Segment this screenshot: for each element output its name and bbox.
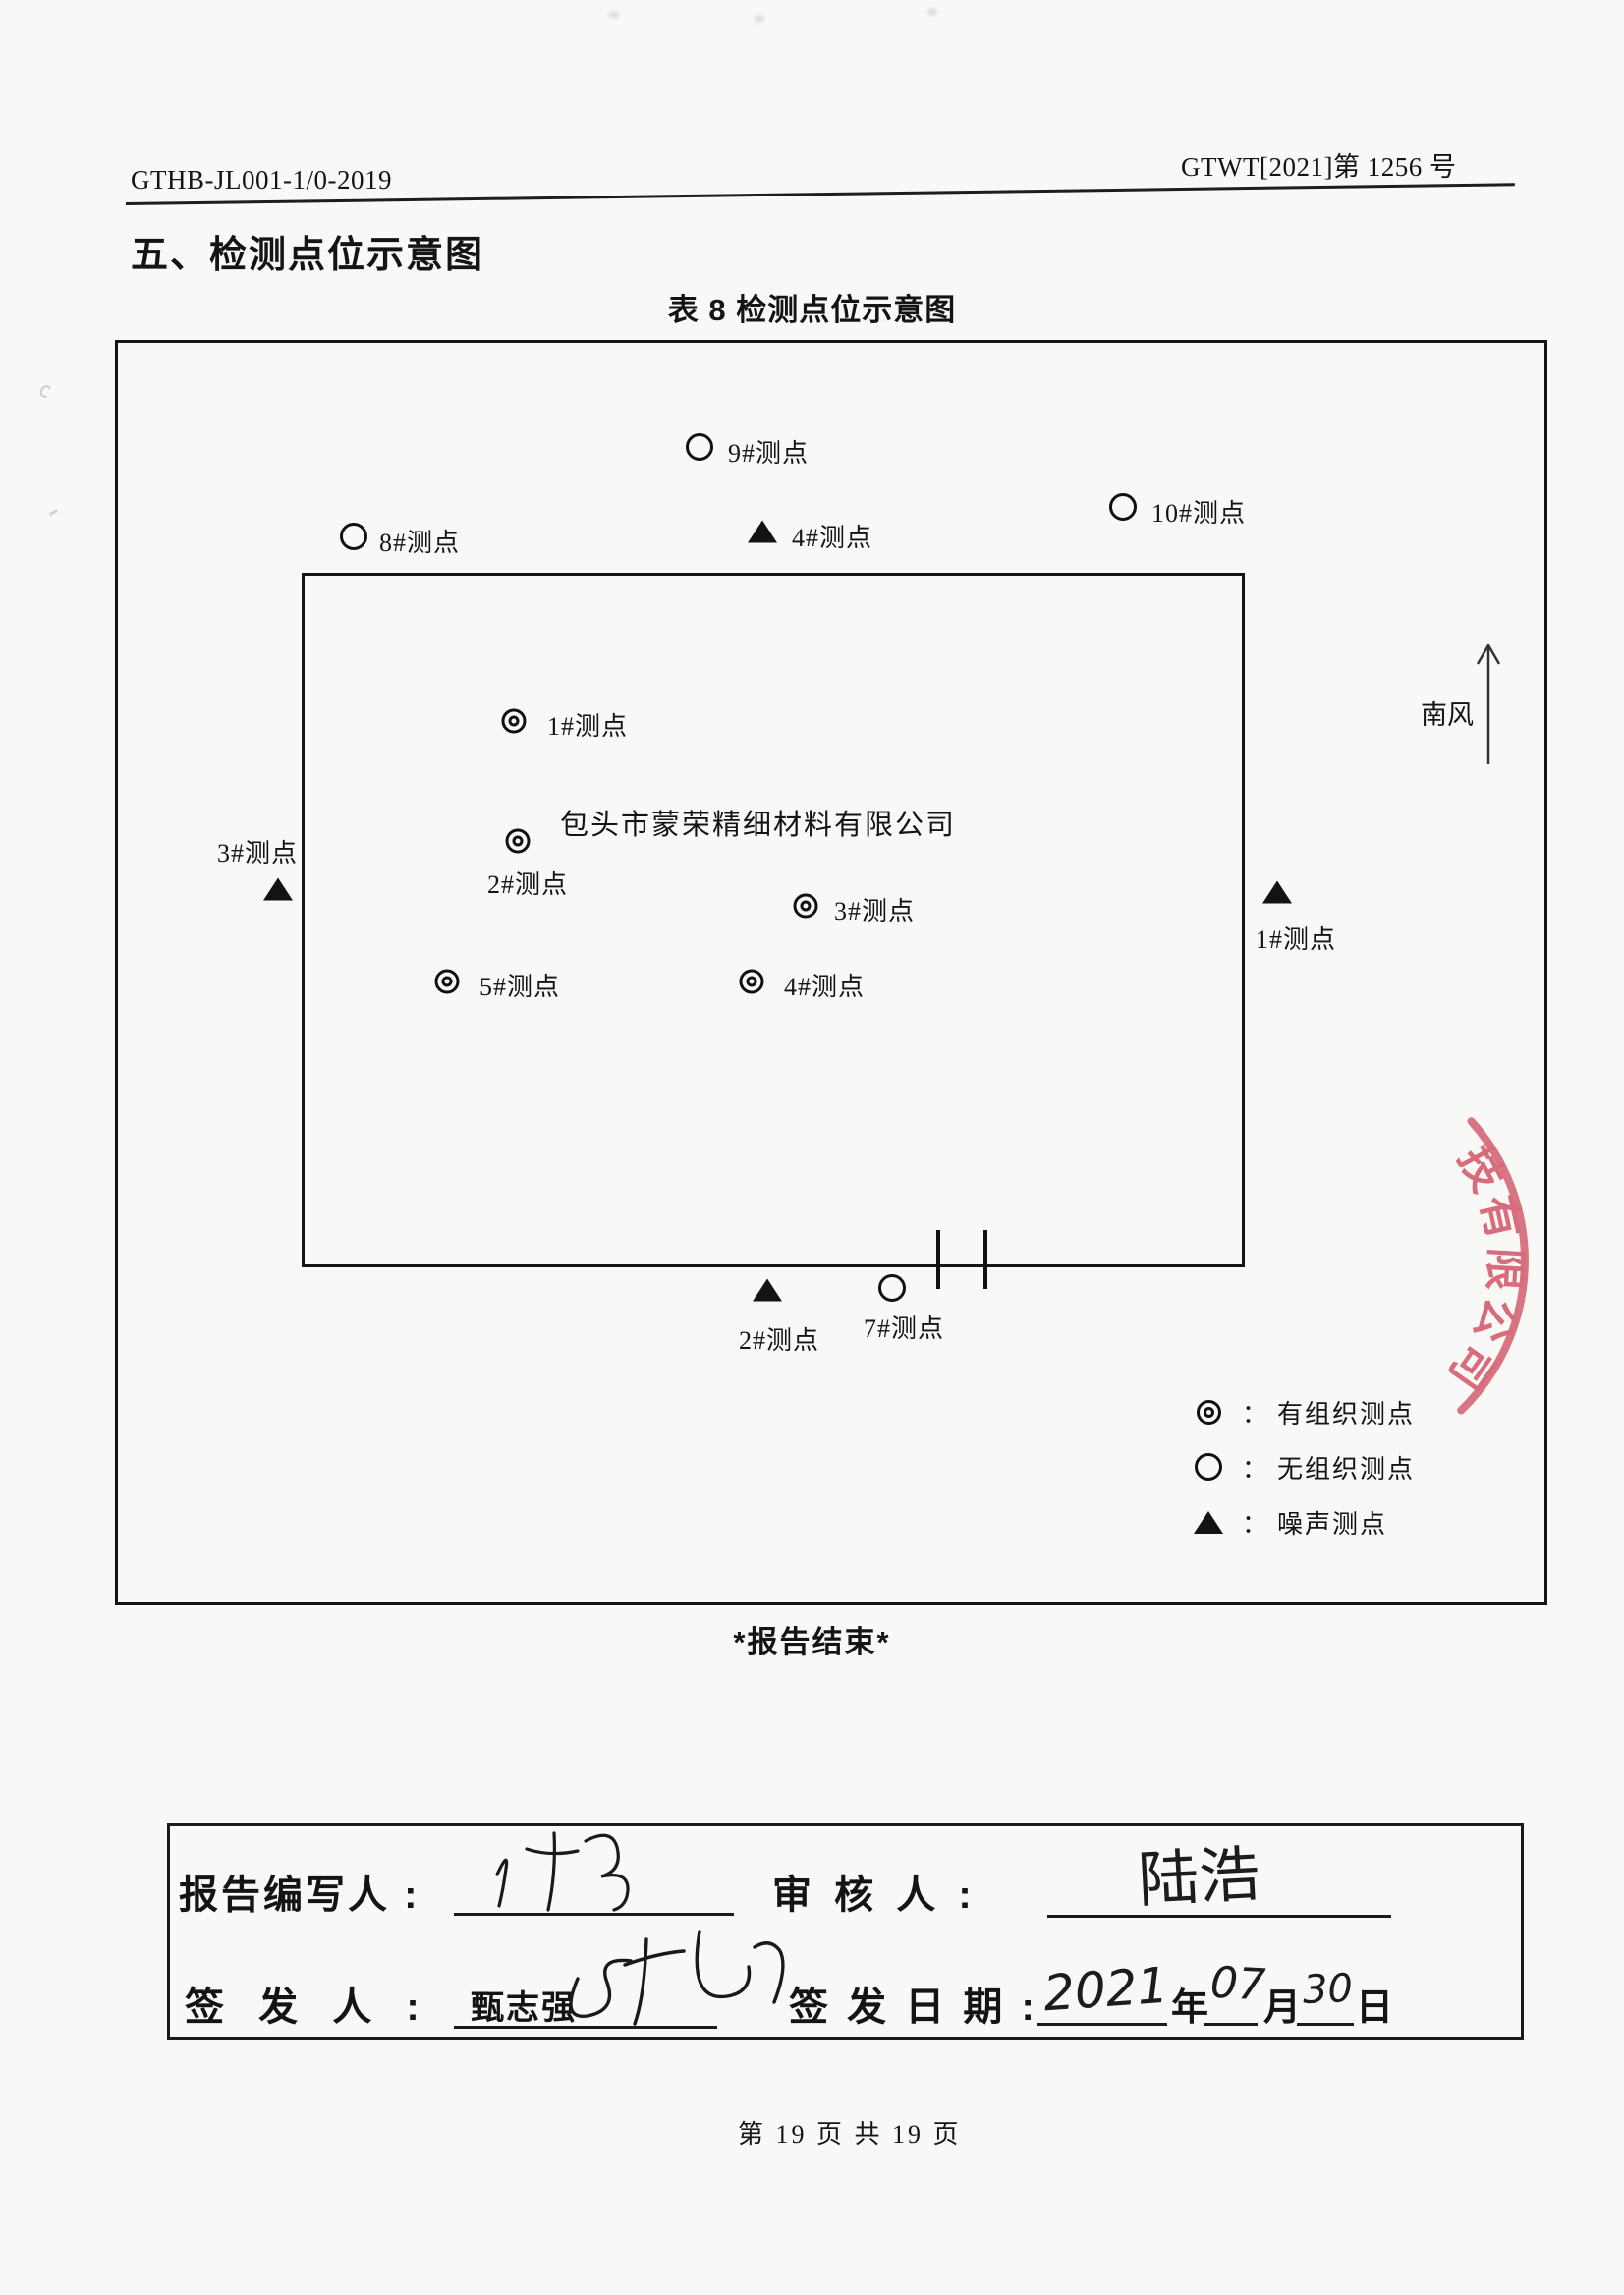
noise-point-symbol [753,1279,782,1302]
day-unit: 日 [1356,1977,1393,2031]
wind-arrow-icon [1469,637,1508,769]
reviewer-signature: 陆浩 [1136,1824,1262,1919]
year-unit: 年 [1171,1977,1208,2031]
scan-smudge [755,16,764,22]
stamp-text: 技有限公司 [1437,1139,1531,1403]
point-label: 4#测点 [792,518,872,554]
point-label: 5#测点 [479,967,560,1003]
point-label: 1#测点 [547,706,628,743]
figure-title: 表 8 检测点位示意图 [0,285,1624,329]
legend-colon: ： [1242,1504,1267,1540]
organized-point-symbol [502,709,527,734]
issue-date-label: 签 发 日 期 : [789,1975,1038,2032]
fugitive-point-symbol [340,523,367,550]
writer-signature-scribble [483,1823,660,1922]
noise-point-symbol [748,521,777,543]
point-label: 8#测点 [379,523,460,559]
doc-code-left: GTHB-JL001-1/0-2019 [131,165,392,196]
point-label: 4#测点 [784,967,865,1003]
organized-point-symbol [740,970,764,994]
report-end-marker: *报告结束* [0,1617,1624,1661]
issuer-label: 签 发 人 : [185,1975,431,2032]
scan-speck [38,383,53,399]
point-label: 3#测点 [217,833,298,869]
month-unit: 月 [1263,1977,1301,2031]
point-label: 10#测点 [1151,493,1246,530]
legend-label: 噪声测点 [1277,1504,1387,1540]
organized-point-symbol [794,894,818,919]
noise-point-icon [1191,1511,1226,1534]
section-title: 五、检测点位示意图 [131,224,484,278]
point-label: 3#测点 [834,891,915,927]
legend-row-noise: ： 噪声测点 [1191,1505,1387,1539]
day-line [1297,2023,1354,2026]
organized-point-symbol [435,970,460,994]
fugitive-point-symbol [686,433,713,461]
reviewer-label: 审 核 人 : [772,1863,978,1920]
page-indicator: 第 19 页 共 19 页 [738,2114,962,2151]
year-line [1037,2023,1167,2026]
issuer-signature-scribble [550,1918,825,2041]
scan-speck [49,509,58,516]
point-label: 2#测点 [487,865,568,901]
svg-text:技有限公司: 技有限公司 [1437,1139,1531,1403]
scan-smudge [927,9,937,15]
reviewer-signature-line [1047,1915,1391,1918]
scan-smudge [609,12,619,18]
document-page: GTHB-JL001-1/0-2019 GTWT[2021]第 1256 号 五… [0,0,1624,2295]
month-line [1204,2023,1258,2026]
noise-point-symbol [263,878,293,901]
fugitive-point-symbol [878,1274,906,1302]
company-seal-stamp: 技有限公司 [1110,1059,1552,1472]
point-label: 1#测点 [1256,920,1336,956]
organized-point-symbol [506,829,531,854]
issue-date-year-value: 2021 [1041,1957,1170,2023]
point-label: 7#测点 [864,1309,944,1345]
point-label: 9#测点 [728,433,809,470]
issue-date-month-value: 07 [1209,1958,1267,2011]
doc-code-right: GTWT[2021]第 1256 号 [1181,145,1456,184]
issue-date-day-value: 30 [1302,1966,1353,2013]
gate-tick [936,1230,940,1289]
wind-direction-label: 南风 [1421,694,1474,732]
noise-point-symbol [1262,881,1292,904]
writer-label: 报告编写人 : [179,1863,420,1920]
point-label: 2#测点 [739,1320,819,1357]
gate-tick [983,1230,987,1289]
company-name-label: 包头市蒙荣精细材料有限公司 [560,802,956,843]
plant-boundary-box [302,573,1245,1267]
fugitive-point-symbol [1109,493,1137,521]
